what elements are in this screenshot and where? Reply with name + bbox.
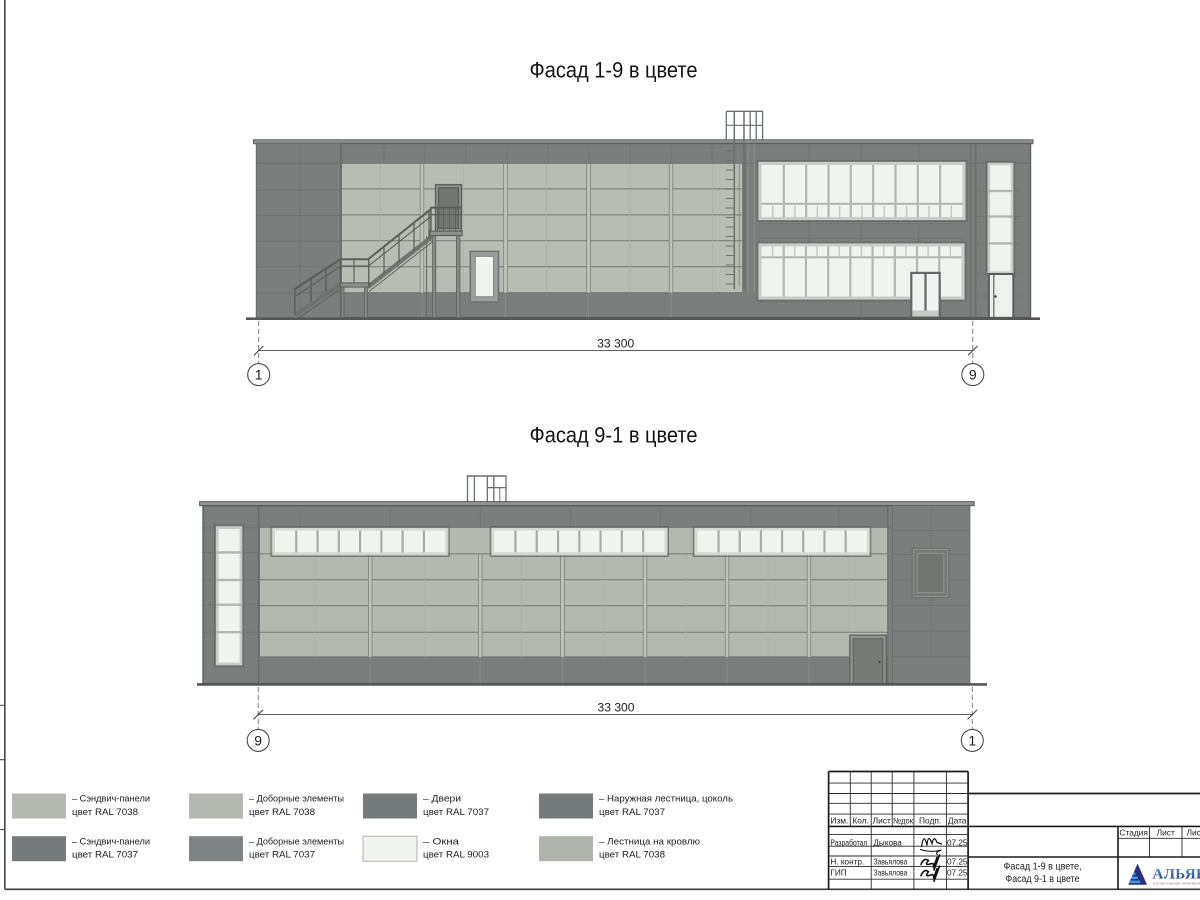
- svg-text:Дата: Дата: [948, 815, 967, 825]
- svg-text:1: 1: [255, 367, 263, 383]
- svg-text:строительная компания: строительная компания: [1153, 882, 1200, 886]
- svg-text:Разработал: Разработал: [830, 838, 867, 847]
- svg-text:Дыкова: Дыкова: [873, 838, 902, 847]
- svg-text:– Сэндвич-панели: – Сэндвич-панели: [72, 794, 150, 805]
- svg-text:Изм.: Изм.: [830, 815, 848, 825]
- svg-text:Фасад 9-1 в цвете: Фасад 9-1 в цвете: [1006, 874, 1080, 885]
- svg-text:– Доборные элементы: – Доборные элементы: [249, 836, 344, 847]
- svg-text:9: 9: [969, 367, 977, 383]
- svg-text:Завьялова: Завьялова: [873, 857, 907, 866]
- svg-text:07.25: 07.25: [947, 838, 968, 847]
- svg-text:Лист: Лист: [1157, 828, 1175, 838]
- svg-text:– Двери: – Двери: [423, 794, 461, 805]
- svg-text:1: 1: [968, 732, 976, 748]
- svg-text:Подп.: Подп.: [919, 815, 941, 825]
- svg-text:Фасад 1-9 в цвете: Фасад 1-9 в цвете: [530, 58, 698, 83]
- svg-text:– Доборные элементы: – Доборные элементы: [249, 794, 344, 805]
- svg-text:цвет RAL 7037: цвет RAL 7037: [72, 850, 138, 861]
- svg-text:Кол.: Кол.: [852, 815, 869, 825]
- svg-text:Лист: Лист: [1187, 828, 1200, 838]
- svg-text:цвет RAL 7038: цвет RAL 7038: [249, 807, 315, 818]
- svg-text:9: 9: [254, 732, 262, 748]
- svg-text:33 300: 33 300: [597, 336, 634, 350]
- svg-text:№док: №док: [893, 815, 913, 825]
- svg-text:Лист: Лист: [873, 815, 891, 825]
- svg-text:07.25: 07.25: [947, 857, 968, 866]
- svg-text:Завьялова: Завьялова: [873, 869, 907, 878]
- svg-text:АЛЬЯНС: АЛЬЯНС: [1153, 867, 1200, 883]
- svg-text:07.25: 07.25: [947, 869, 968, 878]
- svg-text:Н. контр.: Н. контр.: [830, 857, 864, 866]
- svg-text:цвет RAL 7037: цвет RAL 7037: [599, 807, 665, 818]
- svg-text:– Окна: – Окна: [423, 836, 460, 847]
- svg-text:33 300: 33 300: [598, 700, 635, 714]
- svg-text:Фасад 1-9 в цвете,: Фасад 1-9 в цвете,: [1004, 861, 1082, 872]
- svg-text:цвет RAL 9003: цвет RAL 9003: [423, 850, 489, 861]
- svg-text:цвет RAL 7037: цвет RAL 7037: [423, 807, 489, 818]
- svg-text:цвет RAL 7037: цвет RAL 7037: [249, 850, 315, 861]
- svg-text:– Лестница на кровлю: – Лестница на кровлю: [599, 836, 700, 847]
- svg-text:цвет RAL 7038: цвет RAL 7038: [599, 850, 665, 861]
- svg-text:– Наружная лестница, цоколь: – Наружная лестница, цоколь: [599, 794, 733, 805]
- svg-text:– Сэндвич-панели: – Сэндвич-панели: [72, 836, 150, 847]
- svg-text:Фасад 9-1 в цвете: Фасад 9-1 в цвете: [530, 423, 698, 448]
- svg-text:ГИП: ГИП: [830, 869, 846, 878]
- svg-text:цвет RAL 7038: цвет RAL 7038: [72, 807, 138, 818]
- svg-text:Стадия: Стадия: [1119, 828, 1148, 838]
